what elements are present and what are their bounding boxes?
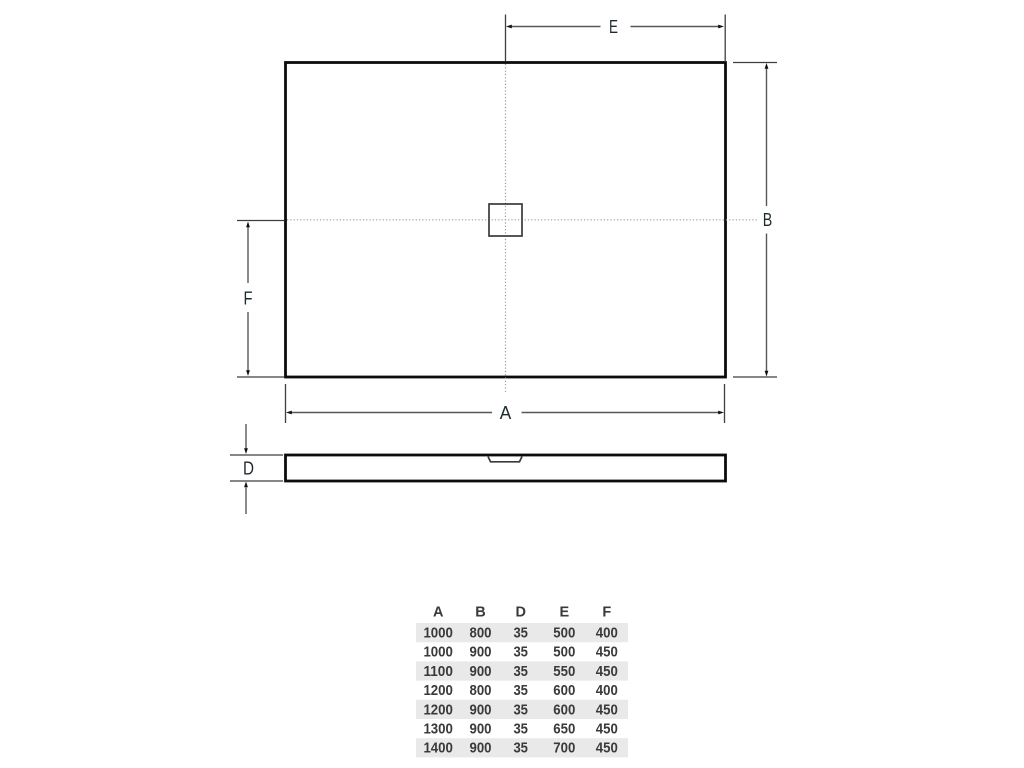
svg-text:35: 35 (513, 702, 528, 718)
svg-text:450: 450 (596, 722, 618, 738)
svg-text:1000: 1000 (423, 626, 453, 642)
svg-text:550: 550 (553, 664, 575, 680)
svg-text:500: 500 (553, 645, 575, 661)
svg-text:35: 35 (513, 722, 528, 738)
svg-text:1000: 1000 (423, 645, 453, 661)
svg-text:900: 900 (470, 741, 492, 757)
svg-text:600: 600 (553, 683, 575, 699)
svg-text:35: 35 (513, 664, 528, 680)
svg-text:450: 450 (596, 664, 618, 680)
svg-text:D: D (515, 605, 525, 621)
svg-text:450: 450 (596, 645, 618, 661)
svg-text:1400: 1400 (423, 741, 453, 757)
svg-text:F: F (602, 605, 611, 621)
svg-text:900: 900 (470, 645, 492, 661)
svg-text:A: A (433, 605, 444, 621)
svg-text:800: 800 (470, 626, 492, 642)
svg-text:D: D (243, 459, 254, 479)
svg-text:35: 35 (513, 683, 528, 699)
svg-text:35: 35 (513, 626, 528, 642)
svg-text:B: B (475, 605, 485, 621)
svg-text:1200: 1200 (423, 702, 453, 718)
svg-text:400: 400 (596, 626, 618, 642)
svg-text:1100: 1100 (423, 664, 453, 680)
svg-text:800: 800 (470, 683, 492, 699)
svg-text:1300: 1300 (423, 722, 453, 738)
svg-text:400: 400 (596, 683, 618, 699)
svg-text:900: 900 (470, 664, 492, 680)
svg-text:35: 35 (513, 645, 528, 661)
svg-text:900: 900 (470, 702, 492, 718)
svg-text:F: F (244, 289, 253, 309)
svg-text:E: E (559, 605, 569, 621)
svg-text:A: A (500, 403, 512, 423)
svg-text:650: 650 (553, 722, 575, 738)
svg-text:700: 700 (553, 741, 575, 757)
svg-text:B: B (763, 210, 773, 230)
svg-text:E: E (609, 17, 618, 37)
svg-text:1200: 1200 (423, 683, 453, 699)
svg-text:450: 450 (596, 741, 618, 757)
svg-text:600: 600 (553, 702, 575, 718)
svg-text:450: 450 (596, 702, 618, 718)
svg-text:900: 900 (470, 722, 492, 738)
svg-text:500: 500 (553, 626, 575, 642)
svg-text:35: 35 (513, 741, 528, 757)
